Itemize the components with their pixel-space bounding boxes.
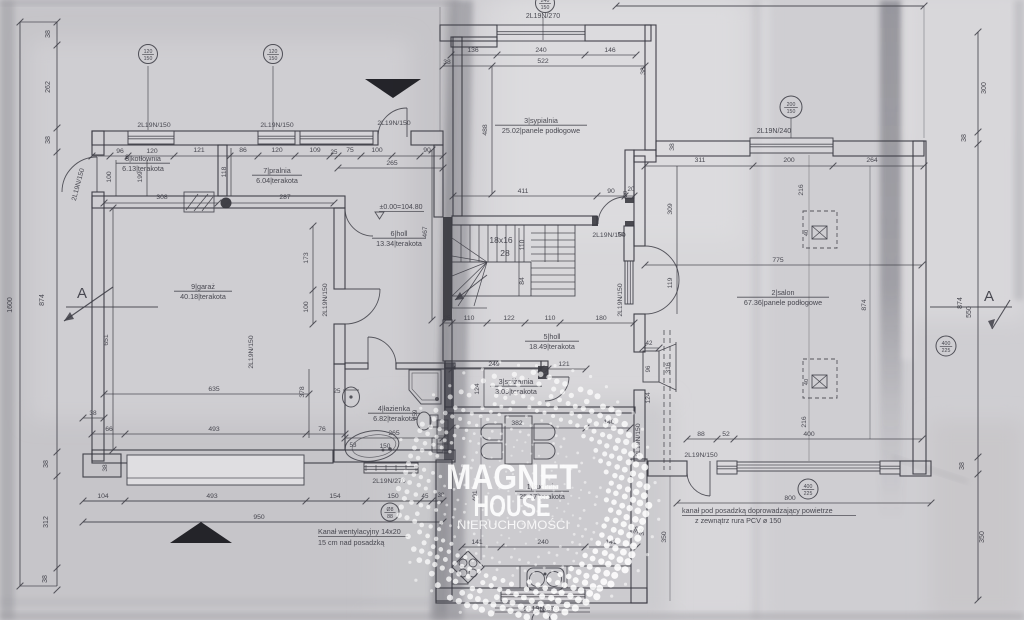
svg-text:225: 225 — [942, 348, 951, 354]
svg-text:100: 100 — [303, 301, 310, 313]
svg-text:38: 38 — [102, 464, 109, 472]
svg-text:493: 493 — [206, 493, 218, 500]
svg-text:8: 8 — [125, 154, 129, 161]
svg-text:300: 300 — [981, 82, 988, 94]
svg-text:18x16: 18x16 — [489, 235, 512, 245]
svg-text:2L19N/150: 2L19N/150 — [617, 283, 624, 316]
svg-text:287: 287 — [279, 194, 291, 201]
svg-text:6.82|terakota: 6.82|terakota — [373, 414, 415, 423]
svg-text:651: 651 — [103, 334, 110, 346]
svg-text:199: 199 — [137, 171, 144, 183]
svg-text:2L19N/150: 2L19N/150 — [635, 423, 642, 456]
svg-text:150: 150 — [787, 109, 796, 115]
svg-text:522: 522 — [537, 58, 549, 65]
svg-text:HOUSE: HOUSE — [474, 490, 551, 523]
svg-text:262: 262 — [45, 81, 52, 93]
svg-text:6|holl: 6|holl — [390, 229, 407, 238]
svg-text:400: 400 — [803, 431, 815, 438]
svg-text:67.36|panele podłogowe: 67.36|panele podłogowe — [744, 298, 822, 307]
svg-text:13.34|terakota: 13.34|terakota — [376, 239, 422, 248]
svg-text:2L19N/150: 2L19N/150 — [248, 335, 255, 368]
svg-text:42: 42 — [646, 340, 653, 347]
svg-text:20: 20 — [623, 191, 629, 197]
svg-text:76: 76 — [318, 426, 326, 433]
svg-text:88: 88 — [387, 514, 393, 520]
svg-text:±0.00=104.80: ±0.00=104.80 — [380, 204, 423, 211]
svg-text:382: 382 — [511, 420, 523, 427]
svg-text:316: 316 — [665, 362, 672, 374]
svg-text:38: 38 — [89, 410, 97, 417]
svg-text:150: 150 — [387, 493, 399, 500]
svg-text:411: 411 — [518, 188, 529, 195]
svg-text:52: 52 — [722, 431, 730, 438]
svg-text:100: 100 — [106, 171, 113, 183]
svg-text:38: 38 — [640, 67, 647, 75]
svg-text:2|salon: 2|salon — [771, 288, 794, 297]
svg-text:635: 635 — [208, 386, 220, 393]
svg-text:146: 146 — [604, 47, 616, 54]
svg-text:216: 216 — [798, 184, 805, 196]
svg-text:4|łazienka: 4|łazienka — [378, 404, 410, 413]
svg-text:265: 265 — [386, 160, 398, 167]
svg-text:109: 109 — [309, 147, 321, 154]
svg-text:8|kotłownia: 8|kotłownia — [125, 154, 161, 163]
svg-text:110: 110 — [464, 315, 475, 322]
svg-text:53: 53 — [350, 442, 357, 449]
svg-text:88: 88 — [697, 431, 705, 438]
svg-text:38: 38 — [669, 143, 676, 151]
svg-text:28: 28 — [500, 248, 510, 258]
svg-text:309: 309 — [667, 203, 674, 215]
svg-text:45: 45 — [422, 493, 429, 500]
svg-text:38: 38 — [443, 59, 451, 66]
svg-text:350: 350 — [979, 531, 986, 543]
svg-text:9|garaż: 9|garaż — [191, 282, 215, 291]
svg-text:265: 265 — [388, 430, 400, 437]
svg-text:119: 119 — [667, 277, 674, 288]
svg-text:110: 110 — [545, 315, 556, 322]
svg-text:96: 96 — [116, 148, 124, 155]
svg-text:874: 874 — [39, 294, 46, 306]
svg-text:A: A — [984, 288, 994, 305]
svg-text:216: 216 — [801, 416, 808, 428]
svg-text:6.04|terakota: 6.04|terakota — [256, 176, 298, 185]
svg-text:z zewnątrz rura PCV ø 150: z zewnątrz rura PCV ø 150 — [695, 516, 781, 525]
svg-text:150: 150 — [269, 56, 278, 62]
svg-text:121: 121 — [558, 361, 570, 368]
svg-text:104: 104 — [97, 493, 109, 500]
svg-text:25: 25 — [444, 315, 451, 322]
svg-text:50: 50 — [618, 232, 624, 238]
svg-text:7|pralnia: 7|pralnia — [263, 166, 290, 175]
svg-text:66: 66 — [105, 426, 113, 433]
svg-text:18.49|terakota: 18.49|terakota — [529, 342, 575, 351]
svg-text:38: 38 — [43, 460, 50, 468]
svg-text:2L19N/240: 2L19N/240 — [757, 128, 791, 135]
svg-text:25: 25 — [331, 149, 338, 156]
svg-text:2L19N/150: 2L19N/150 — [322, 283, 329, 316]
svg-text:240: 240 — [537, 539, 549, 546]
svg-text:240: 240 — [535, 47, 547, 54]
svg-text:40: 40 — [804, 379, 810, 385]
svg-text:Kanał wentylacyjny 14x20: Kanał wentylacyjny 14x20 — [318, 527, 401, 536]
svg-text:467: 467 — [422, 226, 429, 238]
svg-text:38: 38 — [961, 134, 968, 142]
svg-text:2L19N/150: 2L19N/150 — [260, 122, 293, 129]
svg-text:308: 308 — [156, 194, 168, 201]
svg-text:96: 96 — [646, 365, 652, 372]
svg-text:120: 120 — [271, 147, 283, 154]
svg-text:225: 225 — [804, 491, 813, 497]
svg-text:1600: 1600 — [7, 297, 14, 313]
svg-text:150: 150 — [380, 443, 391, 450]
svg-text:150: 150 — [144, 56, 153, 62]
svg-text:15 cm nad posadzką: 15 cm nad posadzką — [318, 538, 384, 547]
svg-text:kanał pod posadzką doprowadzaj: kanał pod posadzką doprowadzający powiet… — [682, 506, 833, 515]
svg-text:84: 84 — [519, 277, 526, 285]
svg-text:2L19N/150: 2L19N/150 — [377, 120, 410, 127]
svg-text:A: A — [77, 285, 87, 302]
svg-text:122: 122 — [503, 315, 515, 322]
svg-text:38: 38 — [42, 575, 49, 583]
svg-text:950: 950 — [253, 514, 265, 521]
svg-text:25.02|panele podłogowe: 25.02|panele podłogowe — [502, 126, 580, 135]
svg-text:121: 121 — [193, 147, 205, 154]
svg-text:110: 110 — [519, 239, 526, 250]
svg-text:311: 311 — [695, 157, 706, 164]
svg-text:350: 350 — [661, 531, 668, 543]
svg-text:136: 136 — [467, 47, 479, 54]
svg-text:488: 488 — [482, 124, 489, 136]
svg-text:874: 874 — [861, 299, 868, 311]
svg-text:38: 38 — [45, 30, 52, 38]
svg-text:3|sypialnia: 3|sypialnia — [524, 116, 558, 125]
svg-text:118: 118 — [221, 166, 228, 177]
svg-text:2L19N/150: 2L19N/150 — [137, 122, 170, 129]
svg-text:550: 550 — [966, 306, 973, 318]
svg-text:90: 90 — [423, 147, 431, 154]
svg-text:40.18|terakota: 40.18|terakota — [180, 292, 226, 301]
svg-text:25: 25 — [334, 388, 341, 395]
svg-text:40: 40 — [804, 230, 810, 236]
svg-text:75: 75 — [346, 147, 354, 154]
svg-text:200: 200 — [783, 157, 795, 164]
svg-text:38: 38 — [959, 462, 966, 470]
svg-text:378: 378 — [299, 386, 306, 398]
svg-text:120: 120 — [146, 148, 158, 155]
svg-text:312: 312 — [43, 516, 50, 528]
svg-text:264: 264 — [866, 157, 878, 164]
svg-text:493: 493 — [208, 426, 220, 433]
svg-text:86: 86 — [239, 147, 247, 154]
svg-text:150: 150 — [541, 5, 550, 11]
svg-text:154: 154 — [329, 493, 341, 500]
svg-text:5|holl: 5|holl — [543, 332, 560, 341]
svg-text:2L19N/150: 2L19N/150 — [684, 452, 717, 459]
svg-text:173: 173 — [303, 252, 310, 264]
svg-text:775: 775 — [772, 257, 784, 264]
svg-text:NIERUCHOMOŚCI: NIERUCHOMOŚCI — [457, 519, 569, 532]
svg-text:800: 800 — [784, 495, 796, 502]
svg-text:90: 90 — [607, 188, 615, 195]
svg-text:38: 38 — [45, 136, 52, 144]
svg-text:100: 100 — [371, 147, 383, 154]
svg-text:124: 124 — [474, 383, 481, 395]
svg-text:180: 180 — [595, 315, 607, 322]
svg-text:124: 124 — [645, 392, 652, 404]
